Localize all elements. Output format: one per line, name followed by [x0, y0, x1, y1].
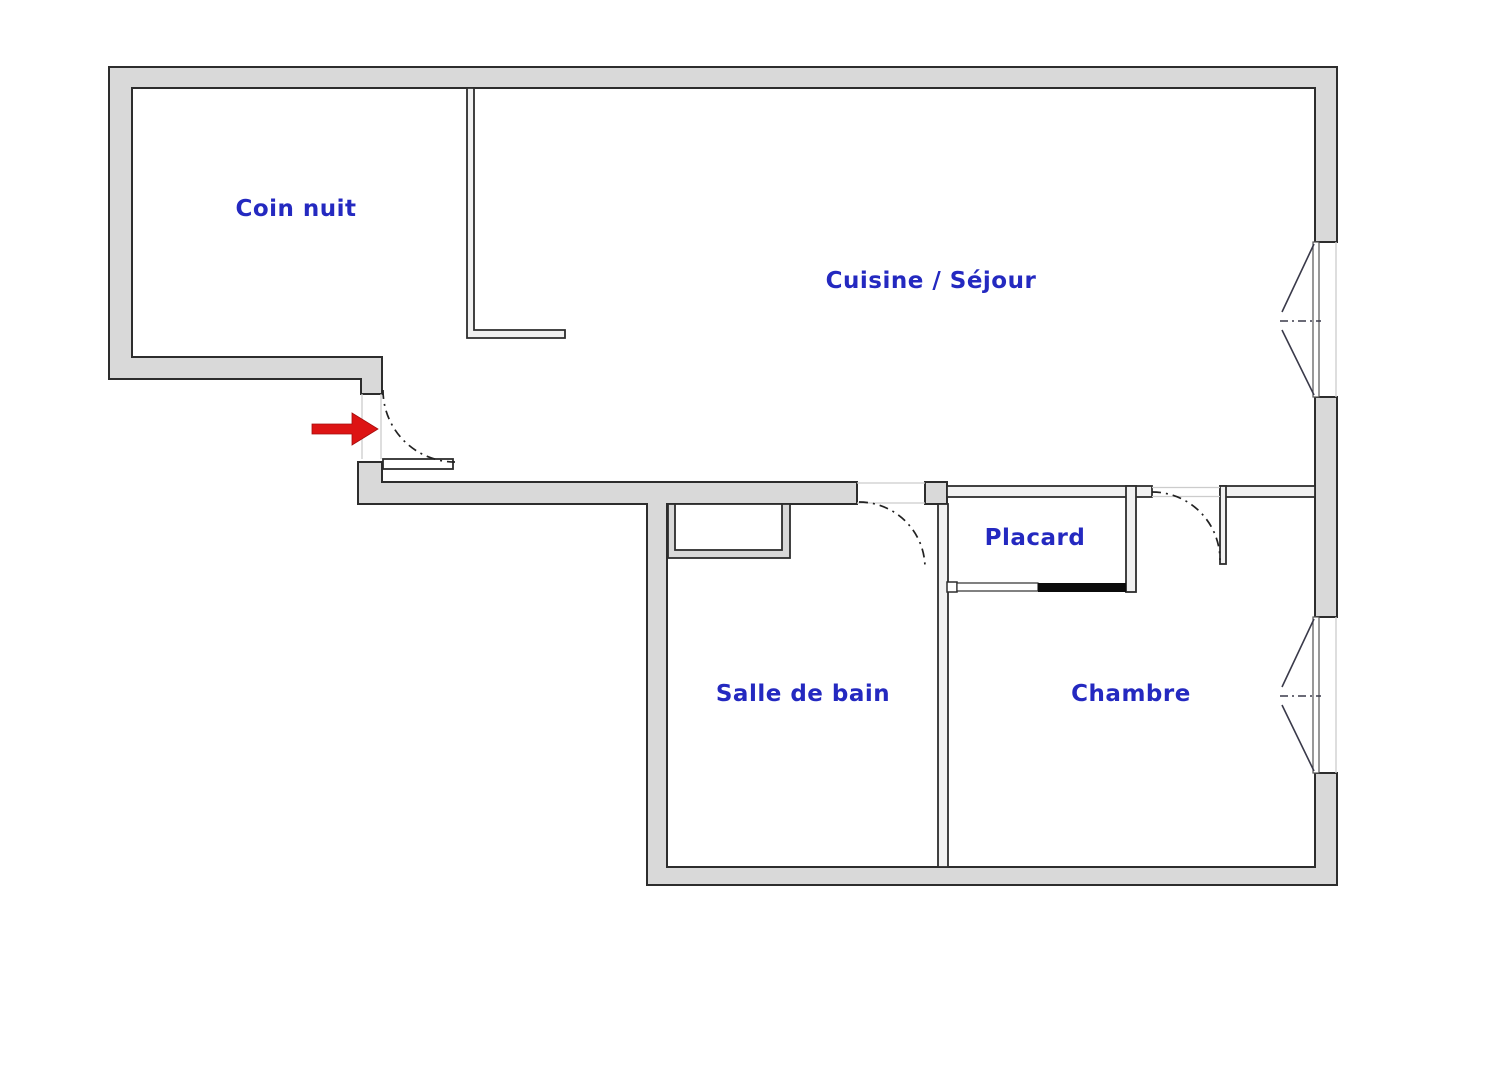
placard-wall-return: [947, 582, 957, 592]
placard-sliding-panel: [1038, 583, 1126, 592]
partition-placard-top: [947, 486, 1152, 497]
partition-bathroom-bedroom: [938, 504, 948, 867]
partition-placard-right: [1126, 486, 1136, 592]
partition-bedroom-top: [1220, 486, 1315, 497]
entrance-door-leaf: [383, 459, 453, 469]
partition-coin-nuit: [467, 88, 565, 338]
partition-bedroom-door-post: [1220, 486, 1226, 564]
placard-open-rail: [957, 583, 1038, 591]
entrance-door-swing-arc: [383, 390, 455, 462]
room-label-coin-nuit: Coin nuit: [235, 196, 356, 222]
room-label-cuisine-sejour: Cuisine / Séjour: [826, 268, 1037, 294]
entrance-arrow-icon: [312, 413, 378, 445]
window-bottom-right: [1280, 617, 1321, 773]
wall-bottom-complex: [358, 462, 1337, 885]
window-frame: [1313, 617, 1319, 773]
room-label-salle-de-bain: Salle de bain: [716, 681, 890, 707]
room-label-chambre: Chambre: [1071, 681, 1191, 707]
wall-right-middle-segment: [1315, 397, 1337, 617]
wall-top-left-complex: [109, 67, 1337, 394]
room-label-placard: Placard: [985, 525, 1086, 551]
bedroom-door-swing-arc: [1152, 492, 1220, 560]
wall-post-bathroom-door: [925, 482, 947, 504]
window-frame: [1313, 242, 1319, 397]
window-casement-lines: [1282, 244, 1314, 395]
window-top-right: [1280, 242, 1321, 397]
floor-plan-drawing: [0, 0, 1491, 1080]
bathroom-door-swing-arc: [859, 502, 925, 568]
floor-plan-canvas: Coin nuit Cuisine / Séjour Placard Salle…: [0, 0, 1491, 1080]
window-casement-lines: [1282, 619, 1314, 771]
bathroom-niche-inner: [675, 504, 782, 550]
